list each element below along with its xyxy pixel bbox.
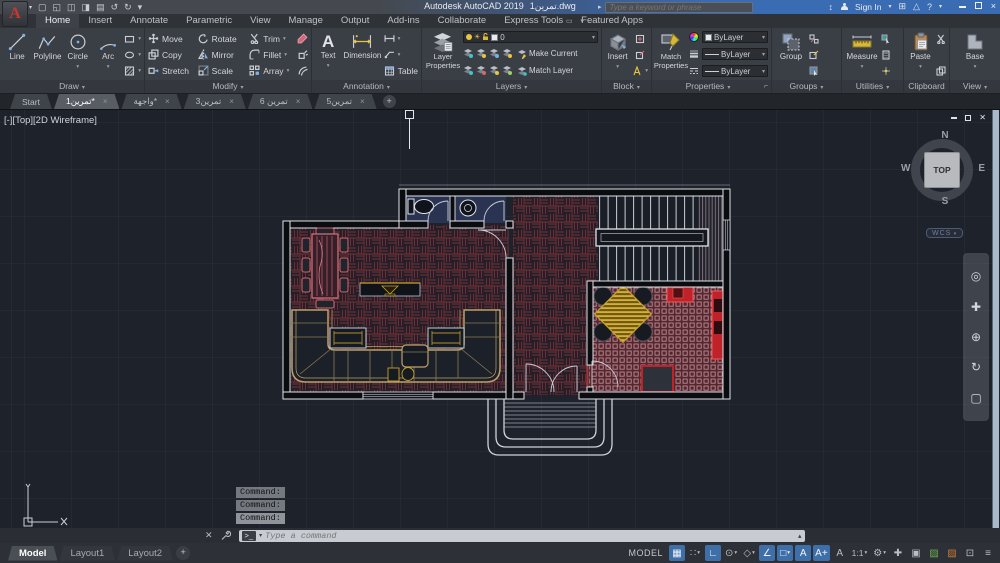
dimension-button[interactable]: Dimension	[343, 30, 381, 80]
viewport-controls[interactable]: [-][Top][2D Wireframe]	[4, 115, 97, 126]
file-tab[interactable]: واجهة*×	[121, 94, 181, 109]
kitchen-appliance	[642, 366, 673, 392]
layer-on-icon[interactable]	[463, 65, 473, 77]
panel-utilities: Measure ▾ Utilities▾	[842, 28, 904, 93]
panel-modify: Move Copy Stretch Rotate Mirror Scale Tr…	[145, 28, 312, 93]
viewport-minimize-icon[interactable]	[951, 117, 957, 119]
model-space-label[interactable]: MODEL	[628, 548, 663, 558]
orbit-icon[interactable]: ↻	[971, 360, 981, 374]
rotate-button[interactable]: Rotate	[198, 32, 248, 45]
file-tab-label: تمرين3	[196, 96, 222, 107]
layer-select[interactable]: ☀ 0 ▾	[463, 31, 598, 43]
search-area: ▸	[598, 2, 753, 13]
app-title: Autodesk AutoCAD 2019	[424, 1, 524, 11]
move-icon	[148, 33, 159, 44]
ellipse-icon	[124, 50, 135, 60]
command-prompt-icon[interactable]: >_	[242, 531, 257, 541]
line-button[interactable]: Line	[3, 30, 31, 80]
viewcube-wcs-menu[interactable]: WCS ▾	[926, 228, 963, 238]
file-tab-close-icon[interactable]: ×	[165, 97, 170, 106]
restore-button[interactable]	[975, 1, 982, 12]
match-layer-button[interactable]: Match Layer	[529, 66, 573, 75]
circle-dropdown-icon[interactable]: ▾	[76, 63, 79, 72]
lineweight-select[interactable]: ByLayer▾	[702, 48, 768, 60]
match-properties-icon	[661, 32, 681, 52]
ribbon-tab-annotate[interactable]: Annotate	[121, 14, 177, 28]
lineweight-icon	[689, 50, 699, 58]
quick-select-icon	[881, 34, 891, 44]
layer-unlock-icon[interactable]	[502, 65, 512, 77]
stretch-icon	[148, 65, 159, 76]
explode-icon	[297, 49, 308, 60]
layer-freeze-icon[interactable]	[489, 48, 499, 60]
edit-attributes-button[interactable]: ▾	[632, 64, 648, 77]
layout-tab-layout1[interactable]: Layout1	[59, 546, 115, 561]
file-tab-label: واجهة*	[133, 96, 157, 107]
ellipse-button[interactable]: ▾	[124, 48, 141, 61]
crosshair-toggle-icon[interactable]: ✚	[890, 545, 906, 561]
circle-icon	[68, 32, 88, 52]
rotate-icon	[198, 33, 209, 44]
move-button[interactable]: Move	[148, 32, 196, 45]
dimension-icon	[351, 32, 373, 51]
command-input-bar[interactable]: >_ ▾ ▴	[239, 530, 805, 542]
panel-label-modify[interactable]: Modify▾	[145, 80, 311, 93]
polyline-button[interactable]: Polyline	[33, 30, 61, 80]
snap-mode-icon[interactable]: ∷▾	[687, 545, 703, 561]
help-dropdown-icon[interactable]: ▾	[939, 3, 942, 10]
new-drawing-tab-button[interactable]: +	[383, 95, 396, 108]
panel-label-block[interactable]: Block▾	[602, 80, 651, 93]
arc-button[interactable]: Arc ▾	[94, 30, 122, 80]
file-tab-label: تمرين 6	[260, 96, 288, 107]
linear-dim-icon	[384, 34, 395, 43]
layer-tools-row2[interactable]	[463, 65, 512, 77]
window-buttons: ×	[959, 1, 996, 12]
panel-groups: Group Groups▾	[772, 28, 842, 93]
object-snap-tracking-icon[interactable]: ∠	[759, 545, 775, 561]
ribbon-tab-insert[interactable]: Insert	[79, 14, 121, 28]
layer-select-dropdown-icon[interactable]: ▾	[592, 34, 595, 41]
group-edit-button[interactable]	[809, 48, 819, 61]
command-close-icon[interactable]: ✕	[205, 530, 213, 541]
file-tab-label: Start	[22, 97, 40, 107]
viewcube-east[interactable]: E	[978, 163, 985, 174]
copy-icon	[148, 49, 159, 60]
edit-block-icon	[635, 50, 645, 60]
viewport-close-icon[interactable]: ✕	[979, 114, 986, 122]
fillet-icon	[249, 49, 260, 60]
ortho-mode-icon[interactable]: ∟	[705, 545, 721, 561]
bathroom	[403, 196, 506, 223]
autocad-window: ▢◱◫◨▤↺↻▾ Autodesk AutoCAD 2019تمرين1.dwg…	[0, 0, 1000, 563]
panel-label-annotation[interactable]: Annotation▾	[312, 80, 421, 93]
search-expand-icon[interactable]: ▸	[598, 3, 602, 11]
ribbon-tab-output[interactable]: Output	[332, 14, 379, 28]
armchair	[402, 345, 428, 367]
file-tab[interactable]: تمرين5×	[314, 94, 376, 109]
doc-name: تمرين1.dwg	[530, 1, 576, 11]
layout-tabs: ModelLayout1Layout2	[8, 546, 173, 561]
measure-button[interactable]: Measure ▾	[845, 30, 879, 80]
vertical-scrollbar[interactable]	[992, 110, 999, 528]
panel-label-view[interactable]: View▾	[950, 80, 1000, 93]
polar-tracking-icon[interactable]: ⊙▾	[723, 545, 739, 561]
status-bar: ModelLayout1Layout2 + MODEL ▦∷▾∟⊙▾◇▾∠□▾A…	[0, 543, 1000, 563]
window-right	[723, 220, 730, 250]
tv-unit	[360, 283, 420, 296]
staircase	[596, 196, 726, 290]
group-select-icon	[809, 66, 819, 76]
layout-tab-model[interactable]: Model	[8, 546, 57, 561]
copy-clip-button[interactable]	[936, 64, 946, 77]
ribbon-tabs: HomeInsertAnnotateParametricViewManageOu…	[0, 14, 1000, 28]
trim-icon	[249, 33, 260, 44]
text-button[interactable]: A Text ▾	[315, 30, 341, 80]
cut-icon	[936, 34, 946, 44]
ribbon-tab-manage[interactable]: Manage	[280, 14, 332, 28]
viewcube-top-face[interactable]: TOP	[924, 152, 960, 188]
ribbon-tab-collaborate[interactable]: Collaborate	[429, 14, 496, 28]
edit-attributes-icon	[632, 66, 642, 76]
file-tab[interactable]: Start	[10, 94, 52, 109]
command-history-line: Command:	[236, 487, 285, 498]
panel-annotation: A Text ▾ Dimension ▾ ▾ Table Annotation▾	[312, 28, 422, 93]
array-icon	[249, 65, 260, 76]
quick-select-button[interactable]	[881, 32, 891, 45]
panel-label-properties[interactable]: Properties▾⌐	[652, 80, 771, 93]
navigation-bar[interactable]: ◎✚⊕↻▢	[963, 253, 989, 421]
object-snap-icon[interactable]: □▾	[777, 545, 793, 561]
command-prompt-dropdown-icon[interactable]: ▾	[259, 532, 262, 539]
ungroup-icon	[809, 34, 819, 44]
layer-properties-button[interactable]: Layer Properties	[425, 30, 461, 80]
title-bar: ▢◱◫◨▤↺↻▾ Autodesk AutoCAD 2019تمرين1.dwg…	[0, 0, 1000, 14]
new-layout-button[interactable]: +	[176, 546, 190, 560]
search-input[interactable]	[605, 2, 753, 13]
layer-lock-icon[interactable]	[502, 48, 512, 60]
mirror-icon	[198, 49, 209, 60]
command-history-line: Command:	[236, 513, 285, 524]
measure-icon	[851, 32, 873, 52]
file-tabs: Startتمرين1*×واجهة*×تمرين3×تمرين 6×تمرين…	[0, 94, 1000, 110]
leader-icon	[384, 50, 395, 59]
command-input[interactable]	[265, 531, 795, 541]
coffee-table	[330, 328, 366, 348]
create-block-icon	[635, 34, 645, 44]
ucs-icon	[6, 478, 70, 528]
copy-button[interactable]: Copy	[148, 48, 196, 61]
file-tab-close-icon[interactable]: ×	[103, 97, 108, 106]
line-icon	[7, 32, 27, 52]
toilet	[408, 199, 414, 214]
entry-porch	[488, 399, 612, 455]
coffee-table-2	[428, 328, 464, 348]
file-tab-label: تمرين1*	[66, 96, 95, 107]
sign-in-dropdown-icon[interactable]: ▾	[888, 3, 891, 10]
layer-unlock-icon	[482, 33, 489, 41]
app-store-icon[interactable]: ⊞	[899, 1, 907, 12]
make-current-button[interactable]: Make Current	[529, 49, 577, 58]
isolate-objects-icon[interactable]: ▣	[908, 545, 924, 561]
command-customize-icon[interactable]	[220, 530, 231, 541]
status-toggles: MODEL ▦∷▾∟⊙▾◇▾∠□▾AA+A1:1▾⚙▾✚▣▨▨⊡≡	[628, 545, 997, 561]
layer-tools-row1[interactable]	[463, 48, 512, 60]
arc-icon	[98, 32, 118, 52]
graphics-performance-icon[interactable]: ▨	[926, 545, 942, 561]
rectangle-icon	[124, 34, 135, 44]
file-tab-close-icon[interactable]: ×	[229, 97, 234, 106]
hardware-accel-icon[interactable]: ▨	[944, 545, 960, 561]
layer-sun-icon: ☀	[474, 33, 480, 41]
sign-in-button[interactable]: Sign In	[855, 2, 881, 12]
viewport-restore-icon[interactable]	[965, 115, 971, 121]
status-icons: ▦∷▾∟⊙▾◇▾∠□▾AA+A1:1▾⚙▾✚▣▨▨⊡≡	[668, 545, 997, 561]
insert-button[interactable]: Insert ▾	[605, 30, 630, 80]
annotation-scale-icon[interactable]: A	[832, 545, 848, 561]
group-button[interactable]: Group	[775, 30, 807, 80]
linetype-icon	[689, 67, 699, 75]
command-expand-icon[interactable]: ▴	[798, 532, 802, 540]
pan-icon[interactable]: ✚	[971, 300, 981, 314]
properties-dialog-launcher-icon[interactable]: ⌐	[764, 80, 768, 93]
stretch-button[interactable]: Stretch	[148, 64, 196, 77]
arc-dropdown-icon[interactable]: ▾	[107, 63, 110, 72]
layer-off-icon[interactable]	[463, 48, 473, 60]
exchange-icon[interactable]: ↕	[829, 2, 834, 12]
insert-icon	[608, 32, 628, 52]
linetype-select[interactable]: ByLayer▾	[702, 65, 768, 77]
group-select-button[interactable]	[809, 64, 819, 77]
sink	[460, 200, 476, 216]
zoom-icon[interactable]: ⊕	[971, 330, 981, 344]
layer-unisolate-icon[interactable]	[476, 65, 486, 77]
crosshair-pickbox	[405, 110, 414, 119]
ribbon-collapse-icon[interactable]: ▭ ▾	[566, 17, 587, 25]
viewport-window-buttons: ✕	[951, 114, 986, 122]
polyline-icon	[37, 32, 57, 52]
paste-button[interactable]: Paste ▾	[907, 30, 934, 80]
circle-button[interactable]: Circle ▾	[64, 30, 92, 80]
panel-view: Base ▾ View▾	[950, 28, 1000, 93]
id-point-button[interactable]	[881, 64, 891, 77]
cut-button[interactable]	[936, 32, 946, 45]
hatch-icon	[124, 66, 135, 76]
trim-button[interactable]: Trim▾	[249, 32, 295, 45]
scale-icon	[198, 65, 209, 76]
kitchen-table	[594, 286, 652, 343]
color-wheel-icon[interactable]	[689, 32, 699, 42]
ribbon-tab-home[interactable]: Home	[36, 14, 79, 28]
ribbon: Line Polyline Circle ▾ Arc ▾ ▾	[0, 28, 1000, 94]
floor-plan-drawing[interactable]	[276, 182, 736, 467]
minimize-button[interactable]	[959, 1, 966, 12]
ungroup-button[interactable]	[809, 32, 819, 45]
mirror-button[interactable]: Mirror	[198, 48, 248, 61]
file-tab-label: تمرين5	[326, 96, 352, 107]
ribbon-tab-view[interactable]: View	[241, 14, 279, 28]
crosshair-line	[409, 119, 410, 149]
ribbon-tab-add-ins[interactable]: Add-ins	[378, 14, 428, 28]
text-icon: A	[322, 32, 334, 51]
file-tab[interactable]: تمرين 6×	[248, 94, 313, 109]
linear-dim-button[interactable]: ▾	[384, 32, 401, 45]
id-point-icon	[881, 66, 891, 76]
panel-label-layers[interactable]: Layers▾	[422, 80, 601, 93]
offset-icon	[297, 65, 308, 76]
copy-clip-icon	[936, 66, 946, 76]
clean-screen-icon[interactable]: ⊡	[962, 545, 978, 561]
table-button[interactable]: Table	[384, 64, 418, 77]
layer-on-icon	[466, 34, 472, 40]
command-bar: ✕ >_ ▾ ▴	[0, 528, 1000, 543]
application-menu-button[interactable]: A	[2, 1, 28, 27]
annotation-autoscale-icon[interactable]: A+	[813, 545, 830, 561]
create-block-button[interactable]	[635, 32, 645, 45]
make-current-icon	[517, 49, 527, 59]
group-icon	[781, 32, 801, 52]
scale-button[interactable]: Scale	[198, 64, 248, 77]
layer-color-swatch	[491, 34, 498, 41]
offset-button[interactable]	[297, 64, 308, 77]
panel-block: Insert ▾ ▾ Block▾	[602, 28, 652, 93]
user-icon	[840, 3, 848, 11]
window-bottom	[363, 392, 433, 399]
fillet-button[interactable]: Fillet▾	[249, 48, 295, 61]
erase-icon	[297, 33, 308, 44]
panel-properties: Match Properties ByLayer▾ ByLayer▾ ByLay…	[652, 28, 772, 93]
ribbon-tab-express-tools[interactable]: Express Tools	[495, 14, 572, 28]
customize-icon[interactable]: ≡	[980, 545, 996, 561]
match-properties-button[interactable]: Match Properties	[655, 30, 687, 80]
paste-icon	[912, 32, 930, 52]
ribbon-tab-parametric[interactable]: Parametric	[177, 14, 241, 28]
viewcube-west[interactable]: W	[901, 163, 910, 174]
autodesk-app-icon[interactable]: △	[913, 1, 920, 12]
erase-button[interactable]	[297, 32, 308, 45]
titlebar-right: ↕ Sign In ▾ ⊞ △ ? ▾	[829, 1, 942, 12]
quick-calc-button[interactable]	[881, 48, 891, 61]
explode-button[interactable]	[297, 48, 308, 61]
help-icon[interactable]: ?	[927, 2, 932, 12]
isometric-drafting-icon[interactable]: ◇▾	[741, 545, 757, 561]
file-tab[interactable]: تمرين3×	[184, 94, 246, 109]
panel-draw: Line Polyline Circle ▾ Arc ▾ ▾	[0, 28, 145, 93]
group-edit-icon	[809, 50, 819, 60]
viewcube[interactable]: N W E S TOP WCS ▾	[900, 136, 990, 241]
hatch-button[interactable]: ▾	[124, 64, 141, 77]
quick-calc-icon	[881, 50, 891, 60]
table-icon	[384, 66, 395, 76]
leader-button[interactable]: ▾	[384, 48, 401, 61]
file-tab[interactable]: تمرين1*×	[54, 94, 120, 109]
grid-display-icon[interactable]: ▦	[669, 545, 685, 561]
panel-label-groups[interactable]: Groups▾	[772, 80, 841, 93]
panel-layers: Layer Properties ☀ 0 ▾ Make Current	[422, 28, 602, 93]
application-menu-dropdown-icon[interactable]: ▾	[29, 4, 32, 11]
navigation-wheel-icon[interactable]: ◎	[971, 269, 981, 283]
panel-label-utilities[interactable]: Utilities▾	[842, 80, 903, 93]
viewcube-north[interactable]: N	[900, 130, 990, 141]
close-button[interactable]: ×	[991, 1, 996, 12]
match-layer-icon	[517, 66, 527, 76]
annotation-scale-value[interactable]: 1:1▾	[850, 545, 870, 561]
file-tab-close-icon[interactable]: ×	[296, 97, 301, 106]
kitchen	[587, 281, 726, 394]
color-swatch	[705, 34, 712, 41]
layer-properties-icon	[433, 32, 453, 52]
base-icon	[965, 32, 985, 52]
current-layer-name: 0	[500, 33, 504, 42]
array-button[interactable]: Array▾	[249, 64, 295, 77]
panel-clipboard: Paste ▾ Clipboard	[904, 28, 950, 93]
viewcube-south[interactable]: S	[900, 196, 990, 207]
layer-thaw-icon[interactable]	[489, 65, 499, 77]
stair-handrail	[596, 229, 708, 246]
command-history-line: Command:	[236, 500, 285, 511]
layer-isolate-icon[interactable]	[476, 48, 486, 60]
panel-label-clipboard[interactable]: Clipboard	[904, 80, 949, 93]
edit-block-button[interactable]	[635, 48, 645, 61]
panel-label-draw[interactable]: Draw▾	[0, 80, 144, 93]
object-color-select[interactable]: ByLayer▾	[702, 31, 768, 43]
layout-tab-layout2[interactable]: Layout2	[117, 546, 173, 561]
file-tab-close-icon[interactable]: ×	[360, 97, 365, 106]
base-button[interactable]: Base ▾	[960, 30, 990, 80]
annotation-visibility-icon[interactable]: A	[795, 545, 811, 561]
rectangle-button[interactable]: ▾	[124, 32, 141, 45]
workspace-icon[interactable]: ⚙▾	[871, 545, 888, 561]
show-motion-icon[interactable]: ▢	[970, 391, 981, 405]
